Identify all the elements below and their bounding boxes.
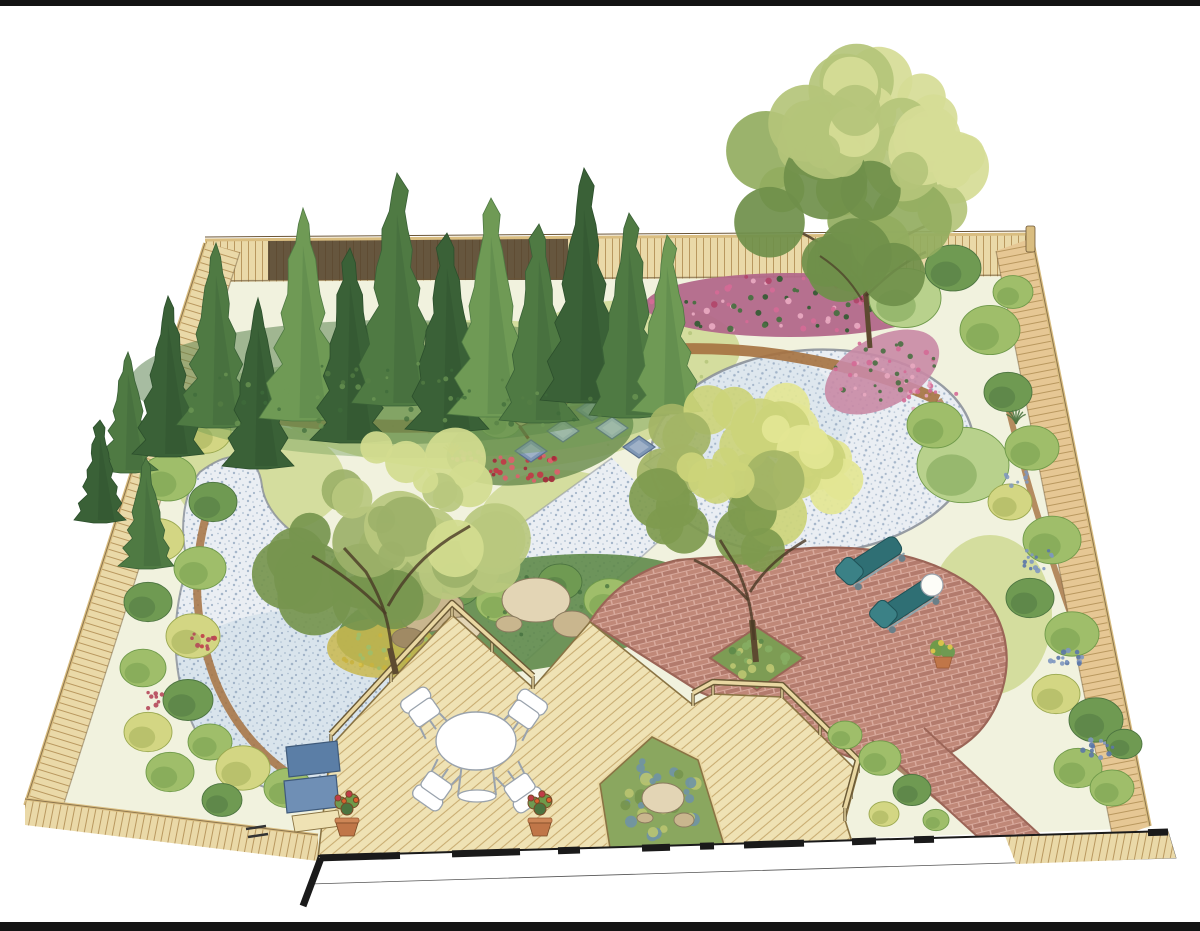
shrub [828, 721, 862, 749]
shrub [163, 680, 213, 721]
pond-boulder [642, 783, 684, 813]
fence-corner-post [1026, 226, 1035, 252]
shrub [1005, 426, 1059, 470]
shrub [189, 482, 237, 521]
shrub [923, 809, 949, 830]
shrub [993, 276, 1033, 309]
shrub [166, 614, 220, 658]
shrub [907, 402, 963, 448]
shrub [174, 547, 226, 590]
shrub [1032, 674, 1080, 713]
shrub [988, 484, 1032, 520]
shrub [1045, 612, 1099, 656]
shrub [146, 752, 194, 791]
deck-steps [284, 741, 341, 832]
blue-slab-step [286, 741, 340, 777]
shrub [202, 784, 242, 817]
patio-side-table [921, 574, 943, 596]
shrub [893, 774, 931, 805]
shrub [124, 582, 172, 621]
shrub [120, 649, 166, 687]
dining-table [436, 712, 516, 770]
top-letterbox-bar [0, 0, 1200, 6]
shrub [859, 741, 901, 775]
garden-plan-drawing: Hand-drawn backyard landscape design pla… [0, 0, 1200, 931]
shrub [1090, 770, 1134, 806]
shrub [984, 372, 1032, 411]
bottom-letterbox-bar [0, 922, 1200, 931]
shrub [960, 305, 1020, 354]
blue-slab-step [284, 775, 339, 813]
shrub [869, 802, 899, 827]
landscape-plan-illustration: Hand-drawn backyard landscape design pla… [0, 0, 1200, 931]
pond-boulder [674, 813, 694, 827]
shrub [124, 712, 172, 751]
shrub [1006, 578, 1054, 617]
pond-boulder [637, 813, 653, 823]
